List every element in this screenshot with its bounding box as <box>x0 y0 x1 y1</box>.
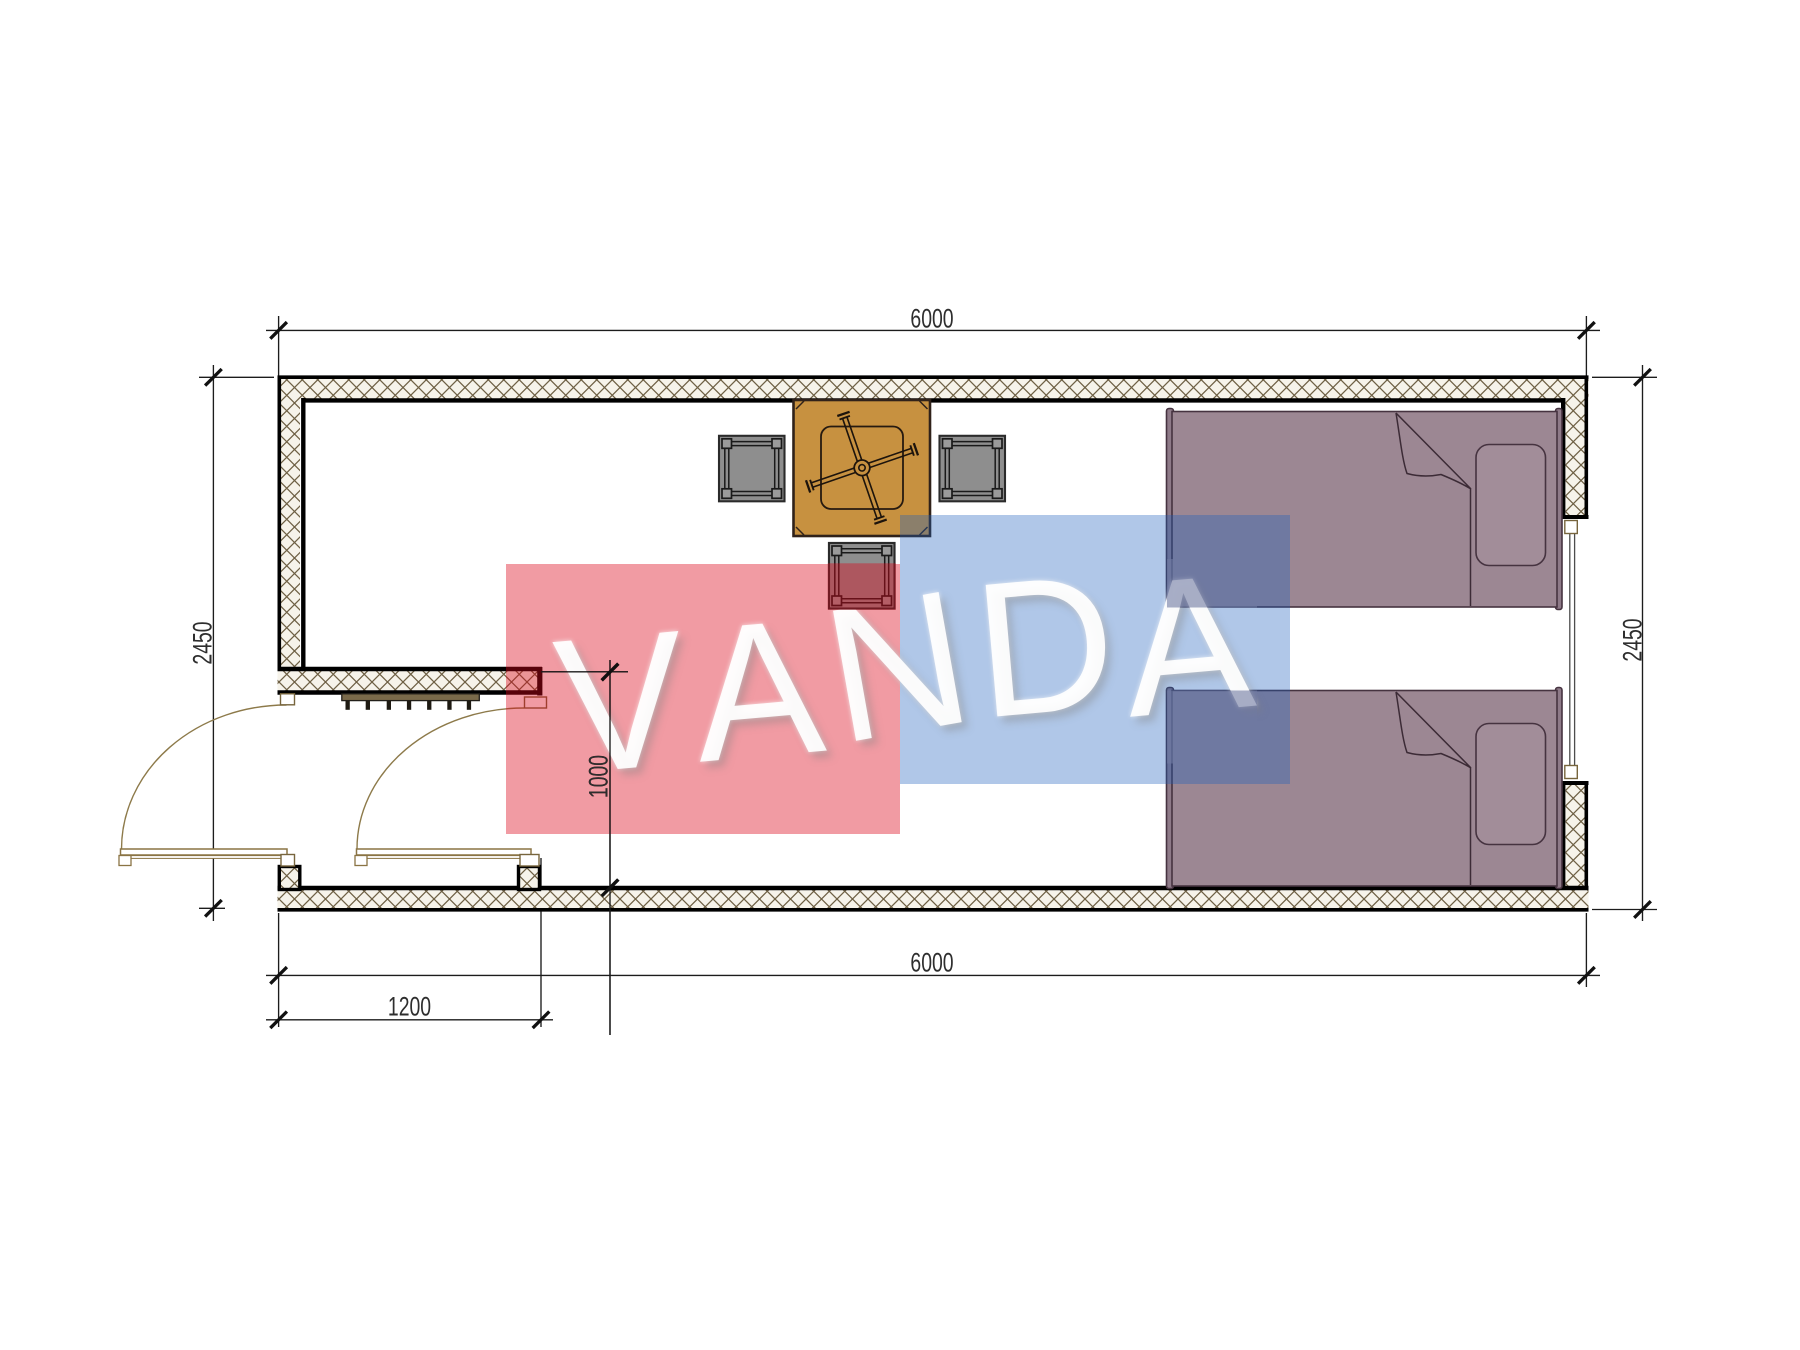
svg-text:1000: 1000 <box>583 755 613 798</box>
